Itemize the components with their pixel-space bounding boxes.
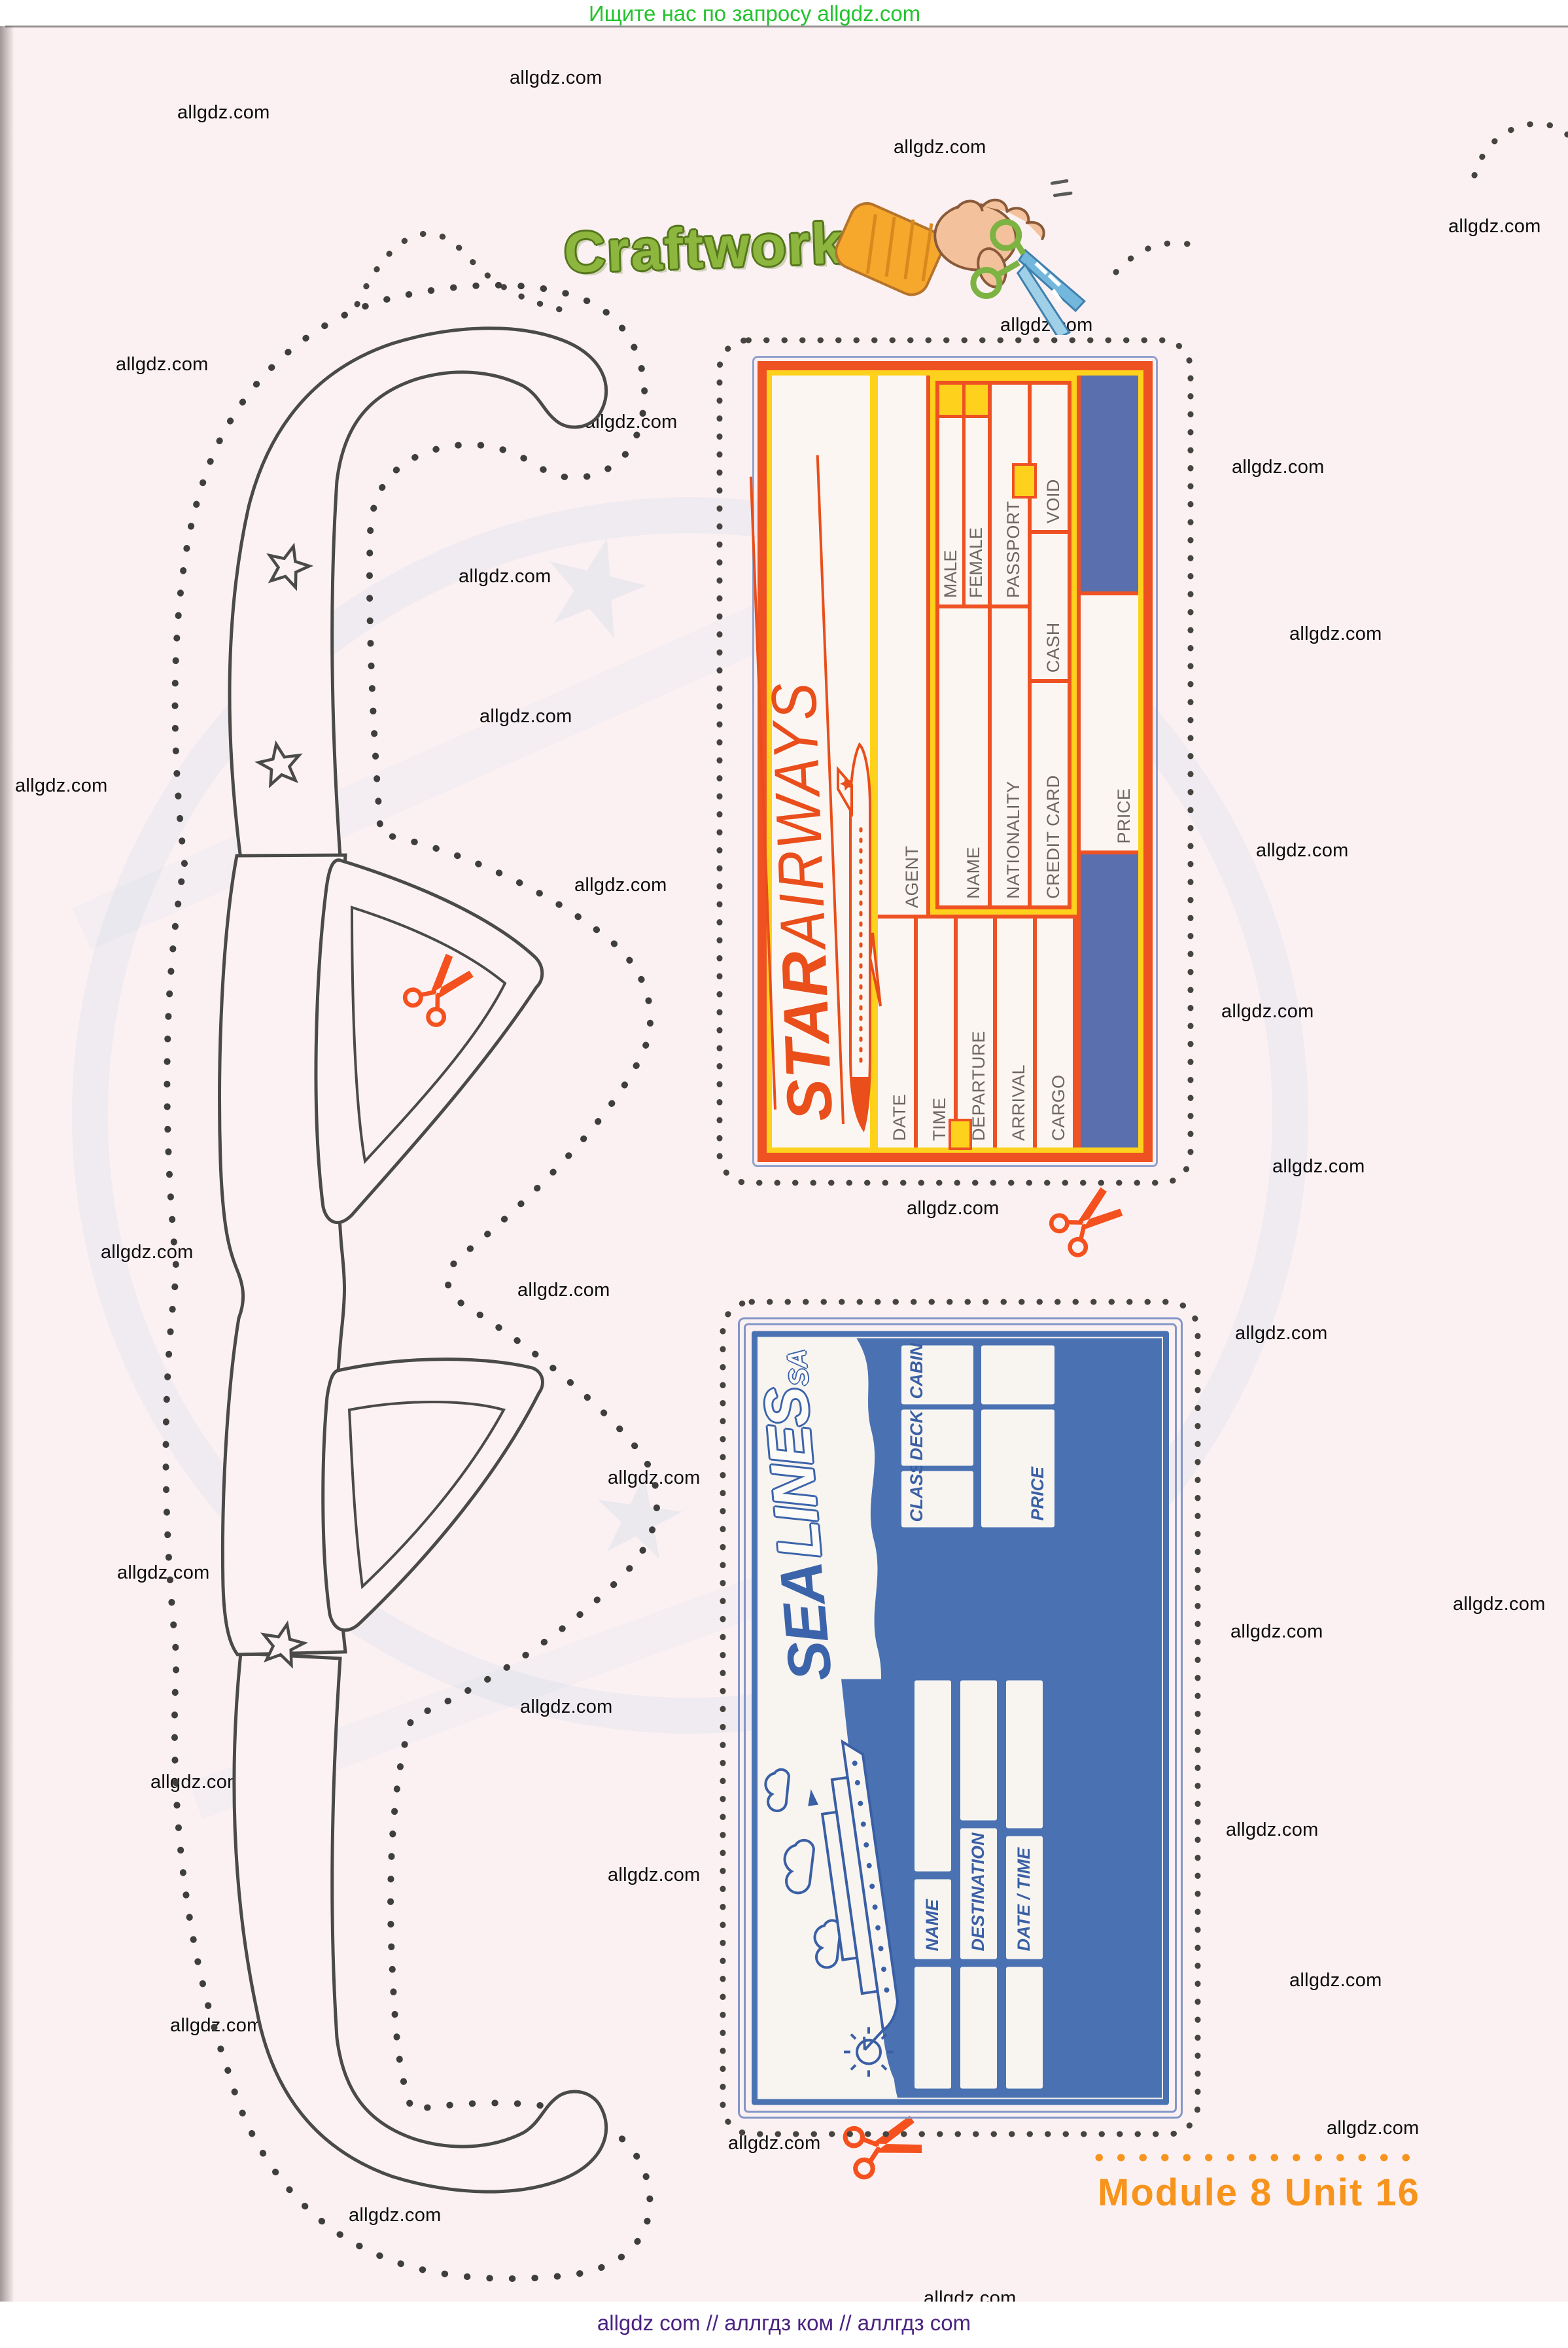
- brand-word-sea: SEA: [768, 1560, 845, 1683]
- watermark-text: allgdz.com: [1235, 1323, 1328, 1344]
- module-unit-label: Module 8 Unit 16: [1098, 2171, 1420, 2215]
- watermark-text: allgdz.com: [1256, 840, 1349, 862]
- field-box: [915, 1681, 951, 1872]
- sleeve: [829, 196, 951, 302]
- field-box: [981, 1346, 1054, 1405]
- glasses-temple-bottom: [234, 1653, 606, 2192]
- page-footer-text: allgdz com // аллгдз ком // аллгдз com: [597, 2311, 971, 2336]
- star-airways-ticket: STAR AIRWAYS: [715, 336, 1195, 1187]
- glasses-lens-bottom: [323, 1359, 543, 1630]
- dotted-arc: [1471, 98, 1568, 183]
- glasses-temple-top: [230, 328, 606, 859]
- page-header-text: Ищите нас по запросу allgdz.com: [589, 1, 920, 26]
- female-checkbox: [966, 385, 988, 418]
- field-box: [1006, 1681, 1043, 1829]
- field-departure: DEPARTURE: [958, 919, 998, 1148]
- field-passport: PASSPORT: [992, 385, 1028, 605]
- scan-edge-line: [5, 26, 1568, 27]
- scanned-workbook-page: ★ ★ ★ Ищите нас по запросу allgdz.com al…: [0, 0, 1568, 2348]
- watermark-text: allgdz.com: [1226, 1819, 1319, 1841]
- star-left-fields: DATE TIME DEPARTURE ARRIVAL CARGO: [878, 919, 1077, 1148]
- field-price: PRICE: [1081, 591, 1138, 854]
- watermark-text: allgdz.com: [1230, 1621, 1323, 1643]
- watermark-text: allgdz.com: [1232, 457, 1325, 478]
- field-cabin: CABIN: [901, 1346, 973, 1405]
- motion-dashes: [1051, 179, 1071, 197]
- field-cash: CASH: [1032, 530, 1068, 679]
- blue-block: [1081, 854, 1138, 1148]
- scan-edge-shadow: [0, 26, 14, 2303]
- glasses-lens-top: [316, 860, 542, 1223]
- star-ticket-body: STAR AIRWAYS: [752, 356, 1158, 1167]
- field-name: NAME: [915, 1880, 951, 1959]
- field-arrival: ARRIVAL: [997, 919, 1037, 1148]
- field-date-time: DATE / TIME: [1006, 1836, 1043, 1959]
- field-nationality: NATIONALITY: [992, 605, 1028, 905]
- watermark-text: allgdz.com: [1327, 2118, 1420, 2139]
- field-price: PRICE: [981, 1410, 1054, 1528]
- brand-word-airways: AIRWAYS: [761, 679, 835, 949]
- field-male: MALE: [939, 385, 966, 605]
- male-checkbox: [939, 385, 962, 418]
- field-credit-card: CREDIT CARD: [1032, 679, 1068, 905]
- field-box: [1006, 1967, 1043, 2089]
- watermark-text: allgdz.com: [1289, 623, 1382, 645]
- sea-ticket-body: SEALINESSA NAME DESTINATION DATE / TIME: [738, 1318, 1183, 2119]
- watermark-text: allgdz.com: [1448, 216, 1541, 237]
- field-box: [960, 1967, 997, 2089]
- field-void: VOID: [1032, 385, 1068, 530]
- star-airways-logo: STAR AIRWAYS: [750, 405, 842, 1127]
- watermark-text: allgdz.com: [907, 1198, 1000, 1219]
- star-yellow-section: NAME MALE FEMALE: [930, 376, 1077, 915]
- field-cargo: CARGO: [1037, 919, 1077, 1148]
- star-bottom-band: PRICE: [1077, 376, 1138, 1148]
- field-destination: DESTINATION: [960, 1829, 997, 1959]
- watermark-text: allgdz.com: [510, 67, 602, 89]
- watermark-text: allgdz.com: [1221, 1001, 1314, 1023]
- field-box: [915, 1967, 951, 2089]
- sea-lines-ticket: SEALINESSA NAME DESTINATION DATE / TIME: [718, 1297, 1202, 2139]
- yellow-notch: [949, 1119, 972, 1150]
- watermark-text: allgdz.com: [1272, 1156, 1365, 1178]
- brand-suffix-sa: SA: [782, 1348, 814, 1387]
- yellow-notch: [1012, 463, 1037, 499]
- hand-with-scissors-icon: [829, 152, 1111, 335]
- watermark-text: allgdz.com: [1289, 1970, 1382, 1991]
- field-name: NAME: [939, 605, 988, 905]
- field-female: FEMALE: [966, 385, 988, 605]
- glasses-template: [85, 272, 687, 2287]
- field-box: [960, 1681, 997, 1821]
- field-time: TIME: [918, 919, 958, 1148]
- watermark-text: allgdz.com: [177, 102, 270, 124]
- male-female-cells: MALE FEMALE: [939, 385, 988, 605]
- field-deck: DECK: [901, 1410, 973, 1466]
- field-date: DATE: [878, 919, 918, 1148]
- dotted-line-orange: [1094, 2150, 1421, 2165]
- dotted-wave-line: [1112, 229, 1210, 281]
- field-agent: AGENT: [878, 376, 930, 915]
- field-class: CLASS: [901, 1471, 973, 1528]
- watermark-text: allgdz.com: [1453, 1594, 1546, 1615]
- brand-word-star: STAR: [768, 949, 846, 1123]
- airplane-icon: [835, 716, 883, 1134]
- blue-block: [1081, 376, 1138, 591]
